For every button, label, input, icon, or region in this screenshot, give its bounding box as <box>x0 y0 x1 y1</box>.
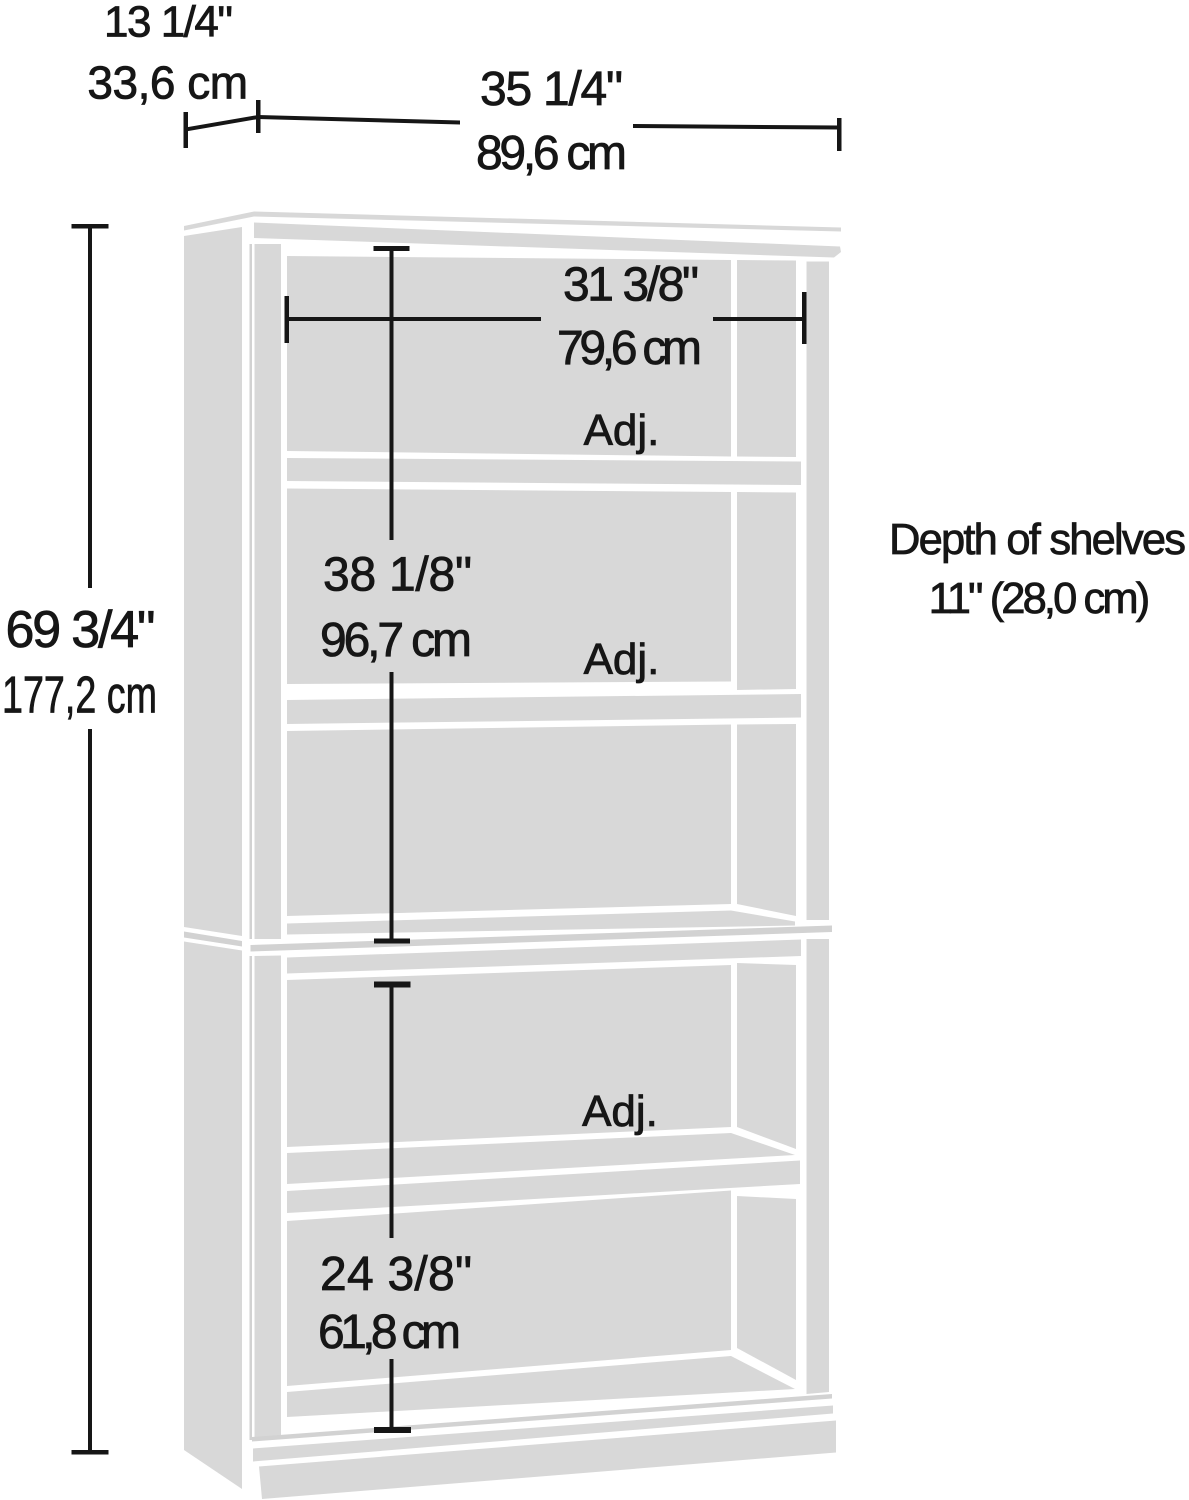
svg-text:Adj.: Adj. <box>584 406 660 455</box>
svg-text:Adj.: Adj. <box>582 1087 658 1136</box>
svg-text:38 1/8": 38 1/8" <box>323 549 472 602</box>
svg-text:24 3/8": 24 3/8" <box>320 1248 472 1301</box>
svg-text:61,8 cm: 61,8 cm <box>318 1306 461 1359</box>
svg-text:96,7 cm: 96,7 cm <box>320 614 472 667</box>
svg-text:35 1/4": 35 1/4" <box>480 63 623 116</box>
svg-text:89,6 cm: 89,6 cm <box>476 127 627 180</box>
svg-text:13 1/4": 13 1/4" <box>104 0 233 47</box>
svg-text:33,6 cm: 33,6 cm <box>87 57 247 109</box>
svg-text:11" (28,0 cm): 11" (28,0 cm) <box>929 575 1148 623</box>
svg-text:79,6 cm: 79,6 cm <box>557 322 702 375</box>
svg-text:Depth of shelves: Depth of shelves <box>889 516 1186 564</box>
svg-text:69 3/4": 69 3/4" <box>6 601 156 659</box>
svg-text:31 3/8": 31 3/8" <box>563 259 699 312</box>
svg-text:177,2 cm: 177,2 cm <box>2 667 157 725</box>
svg-text:Adj.: Adj. <box>584 635 660 684</box>
